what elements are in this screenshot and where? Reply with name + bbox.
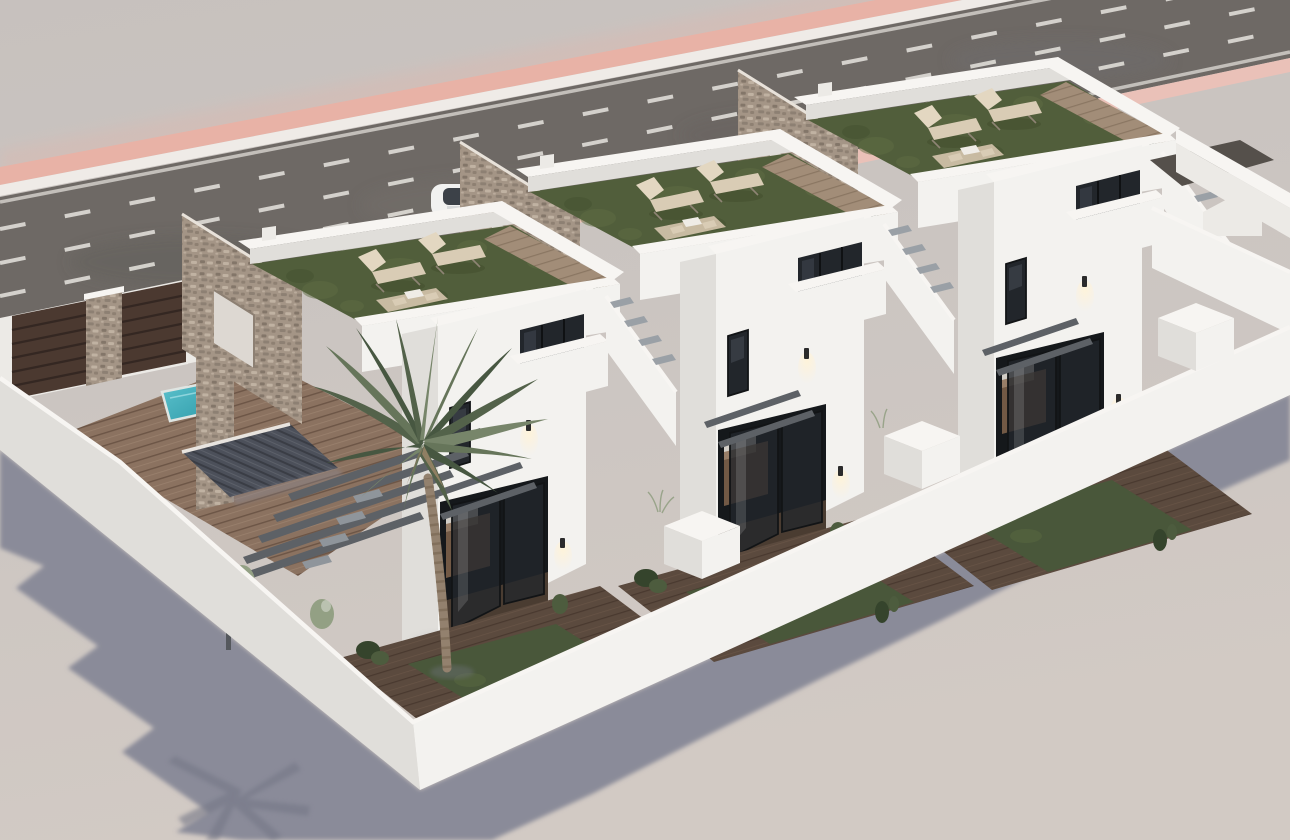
render-canvas xyxy=(0,0,1290,840)
gate-pillar xyxy=(86,289,122,386)
architectural-render xyxy=(0,0,1290,840)
driveway-gate xyxy=(122,281,186,375)
